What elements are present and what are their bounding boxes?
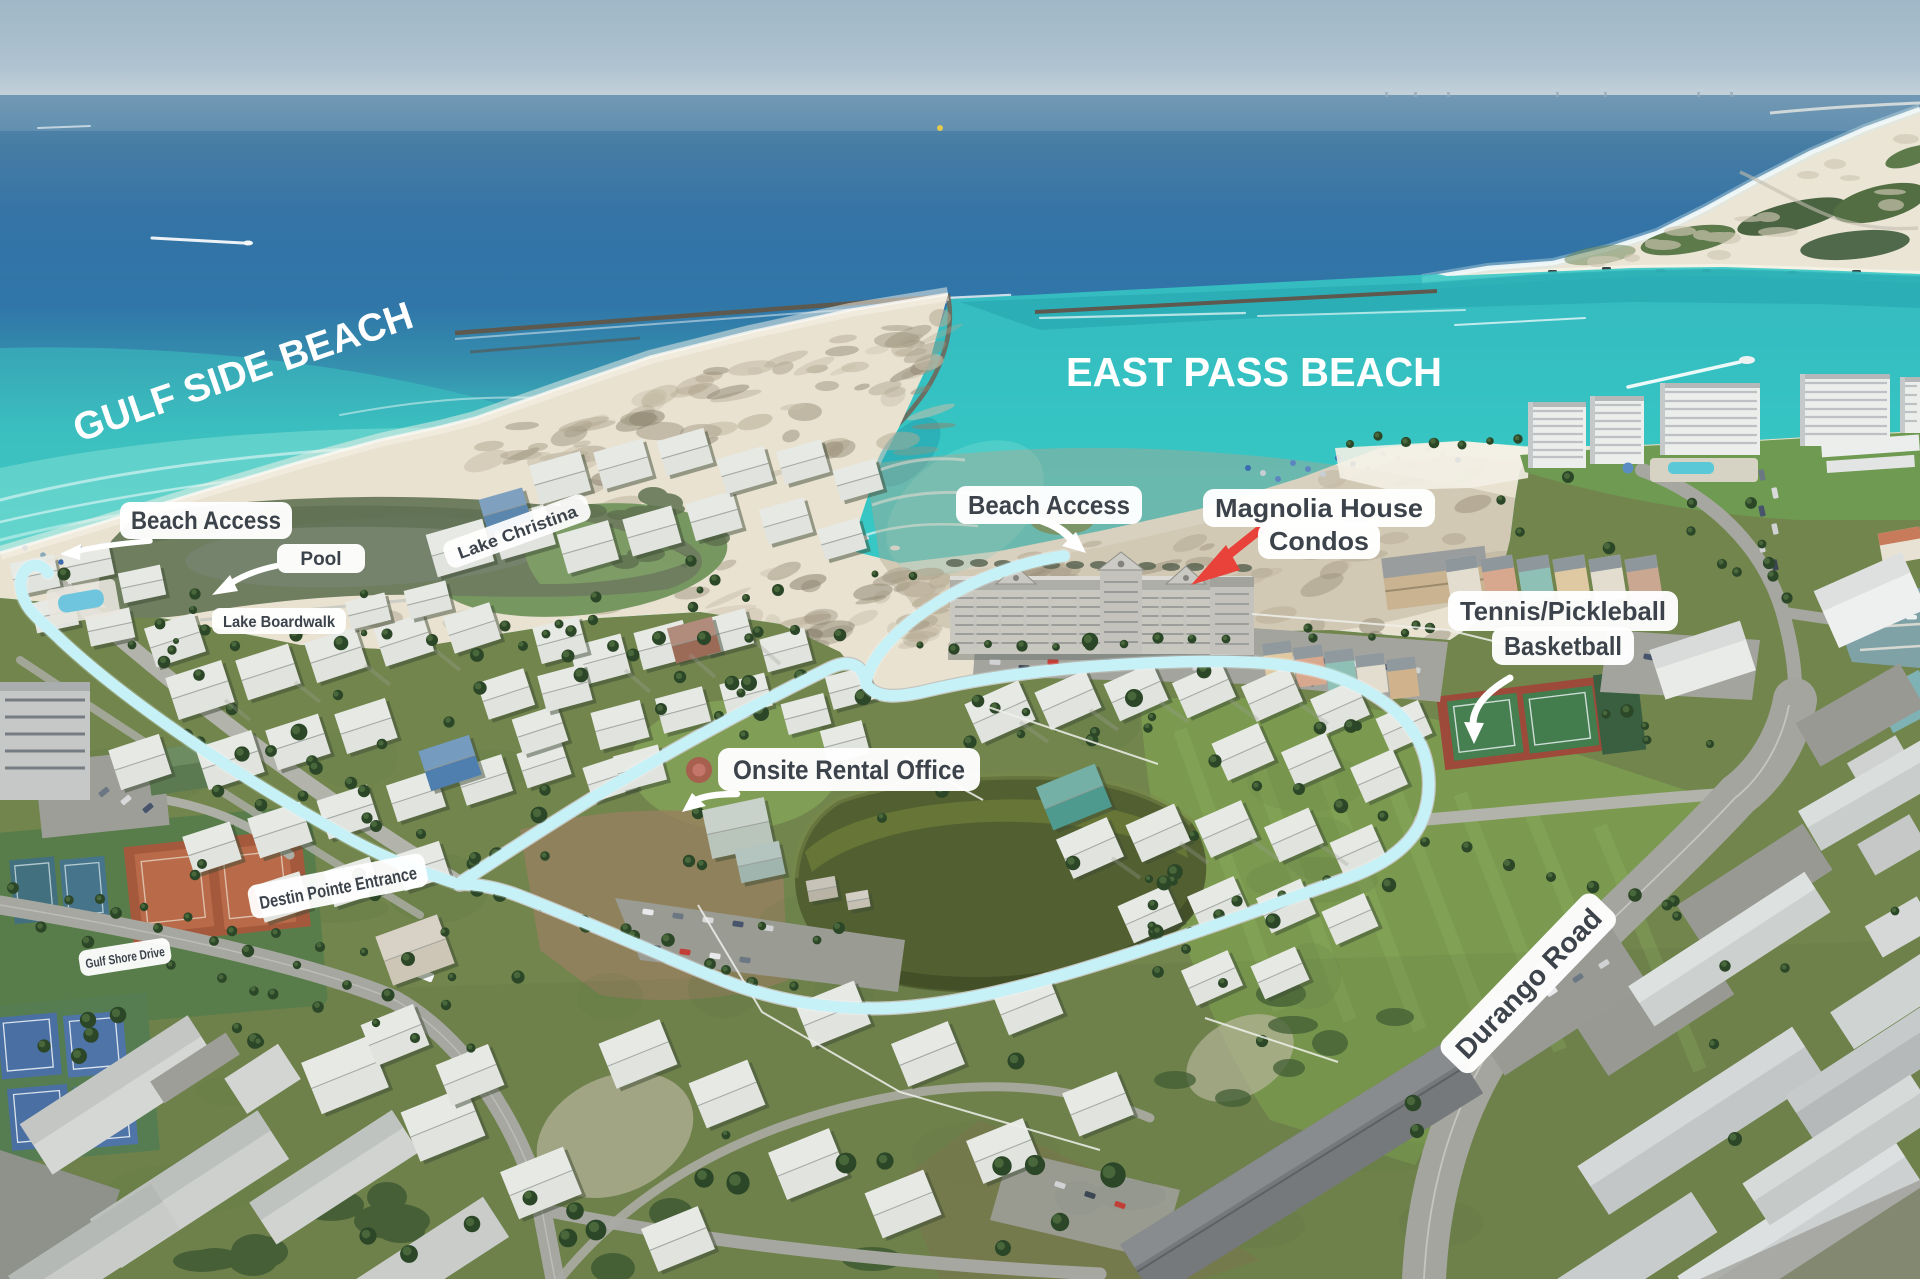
svg-text:Tennis/Pickleball: Tennis/Pickleball (1460, 596, 1666, 626)
svg-text:EAST PASS BEACH: EAST PASS BEACH (1066, 349, 1442, 395)
svg-text:Magnolia House: Magnolia House (1215, 493, 1423, 523)
svg-text:Onsite Rental Office: Onsite Rental Office (733, 755, 965, 785)
svg-text:Basketball: Basketball (1504, 631, 1622, 661)
svg-text:Beach Access: Beach Access (131, 507, 281, 535)
svg-text:Lake Boardwalk: Lake Boardwalk (223, 614, 335, 631)
svg-text:Beach Access: Beach Access (968, 490, 1130, 520)
svg-text:Condos: Condos (1269, 526, 1369, 556)
svg-text:Pool: Pool (300, 549, 341, 570)
